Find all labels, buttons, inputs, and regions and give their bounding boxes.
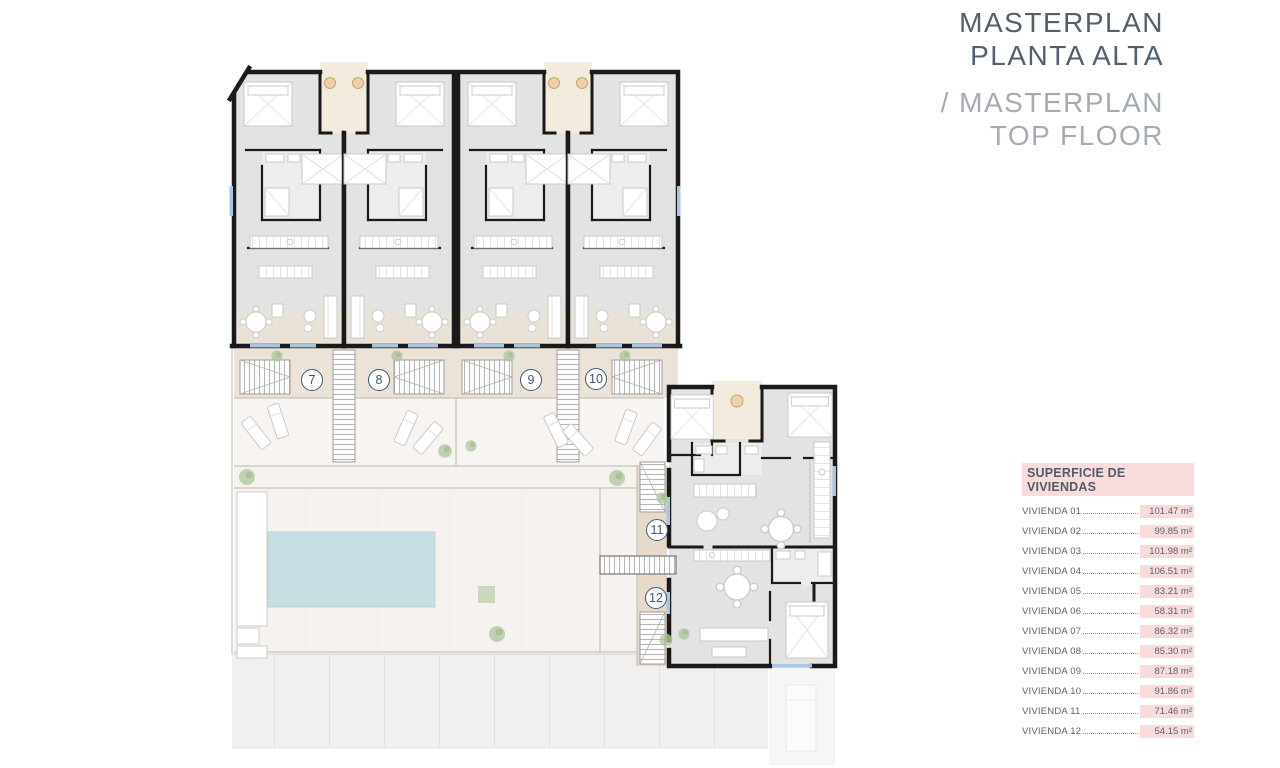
row-label: VIVIENDA 03	[1022, 546, 1081, 557]
table-row: VIVIENDA 0658.31 m²	[1022, 605, 1194, 625]
page-title-es-line2: PLANTA ALTA	[941, 39, 1164, 72]
row-label: VIVIENDA 10	[1022, 686, 1081, 697]
unit-badge-12: 12	[645, 587, 667, 609]
terraces	[232, 348, 678, 658]
units-11-12-block	[667, 381, 837, 668]
table-row: VIVIENDA 0786.32 m²	[1022, 625, 1194, 645]
row-value: 71.46 m²	[1140, 705, 1194, 718]
row-value: 58.31 m²	[1140, 605, 1194, 618]
table-row: VIVIENDA 1091.86 m²	[1022, 685, 1194, 705]
table-row: VIVIENDA 04106.51 m²	[1022, 565, 1194, 585]
row-label: VIVIENDA 05	[1022, 586, 1081, 597]
table-row: VIVIENDA 1171.46 m²	[1022, 705, 1194, 725]
areas-table-title: SUPERFICIE DE VIVIENDAS	[1022, 463, 1194, 496]
row-value: 87.18 m²	[1140, 665, 1194, 678]
areas-table-rows: VIVIENDA 01101.47 m² VIVIENDA 0299.85 m²…	[1022, 505, 1194, 745]
unit-badge-8: 8	[368, 369, 390, 391]
unit-badge-9: 9	[520, 369, 542, 391]
row-label: VIVIENDA 09	[1022, 666, 1081, 677]
unit-badge-10: 10	[585, 368, 607, 390]
row-label: VIVIENDA 12	[1022, 726, 1081, 737]
table-row: VIVIENDA 0885.30 m²	[1022, 645, 1194, 665]
row-label: VIVIENDA 01	[1022, 506, 1081, 517]
row-label: VIVIENDA 07	[1022, 626, 1081, 637]
row-label: VIVIENDA 02	[1022, 526, 1081, 537]
pool	[268, 532, 435, 607]
table-row: VIVIENDA 0987.18 m²	[1022, 665, 1194, 685]
row-value: 99.85 m²	[1140, 525, 1194, 538]
title-block: MASTERPLAN PLANTA ALTA / MASTERPLAN TOP …	[941, 6, 1164, 152]
table-row: VIVIENDA 03101.98 m²	[1022, 545, 1194, 565]
unit-badge-7: 7	[301, 369, 323, 391]
top-units-block	[228, 62, 681, 348]
row-value: 91.86 m²	[1140, 685, 1194, 698]
unit-badge-11: 11	[646, 519, 668, 541]
masterplan-page: 7 8 9 10 11 12 MASTERPLAN PLANTA ALTA / …	[0, 0, 1280, 768]
page-title-en-line1: / MASTERPLAN	[941, 86, 1164, 119]
row-value: 101.98 m²	[1140, 545, 1194, 558]
page-title-es-line1: MASTERPLAN	[941, 6, 1164, 39]
row-value: 85.30 m²	[1140, 645, 1194, 658]
row-value: 83.21 m²	[1140, 585, 1194, 598]
table-row: VIVIENDA 0583.21 m²	[1022, 585, 1194, 605]
exterior-stair	[600, 556, 676, 574]
table-row: VIVIENDA 0299.85 m²	[1022, 525, 1194, 545]
table-row: VIVIENDA 1254.15 m²	[1022, 725, 1194, 745]
row-value: 54.15 m²	[1140, 725, 1194, 738]
row-value: 101.47 m²	[1140, 505, 1194, 518]
row-value: 86.32 m²	[1140, 625, 1194, 638]
row-label: VIVIENDA 08	[1022, 646, 1081, 657]
row-value: 106.51 m²	[1140, 565, 1194, 578]
table-row: VIVIENDA 01101.47 m²	[1022, 505, 1194, 525]
row-label: VIVIENDA 06	[1022, 606, 1081, 617]
row-label: VIVIENDA 04	[1022, 566, 1081, 577]
areas-table: SUPERFICIE DE VIVIENDAS VIVIENDA 01101.4…	[1022, 463, 1194, 745]
row-label: VIVIENDA 11	[1022, 706, 1081, 717]
page-title-en-line2: TOP FLOOR	[941, 119, 1164, 152]
